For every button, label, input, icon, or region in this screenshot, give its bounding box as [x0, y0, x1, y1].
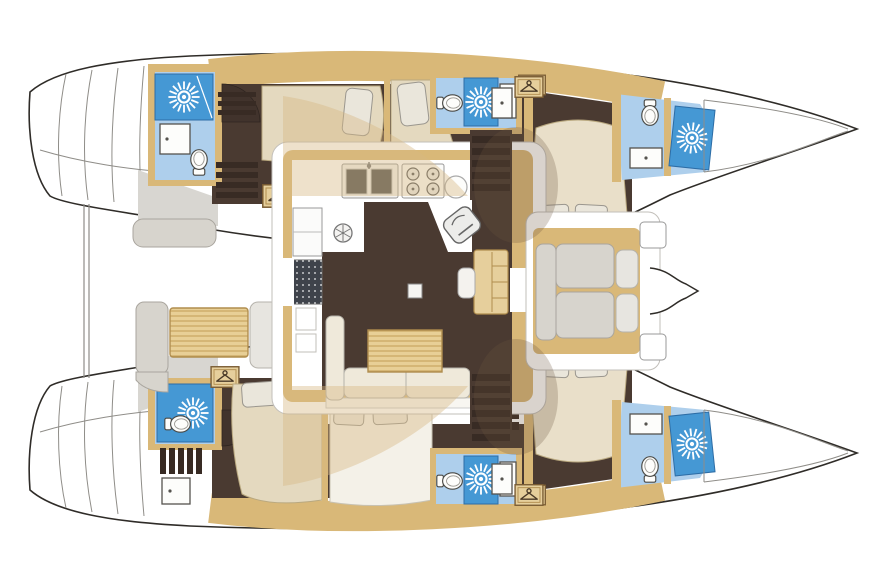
toilet-icon	[191, 150, 207, 176]
cockpit-table	[170, 308, 248, 357]
toilet-icon	[165, 416, 191, 432]
toilet-icon	[642, 457, 658, 483]
extractor-fan-icon	[334, 224, 352, 242]
mast-post	[408, 284, 422, 298]
port-aft-bathroom	[148, 64, 222, 186]
nav-seat	[458, 268, 475, 298]
locker-step	[640, 334, 666, 360]
u-sofa-seat	[556, 244, 614, 288]
u-sofa-cushion	[616, 250, 638, 288]
wardrobe-hanger-icon	[515, 77, 543, 98]
toilet-icon	[642, 100, 658, 126]
shower-stall	[669, 106, 715, 170]
deck-plan-stage	[0, 0, 873, 582]
bathroom-wall	[612, 90, 621, 182]
wardrobe-hanger-icon	[515, 485, 543, 506]
aft-davits	[84, 204, 89, 378]
bow-bracket	[650, 268, 698, 314]
shower-stall	[669, 412, 715, 476]
vanity-sink	[162, 478, 190, 504]
side-window	[296, 334, 316, 352]
pillow	[397, 81, 430, 126]
shower-icon	[168, 81, 199, 112]
vanity-sink	[630, 414, 662, 434]
locker-door	[492, 464, 512, 494]
u-sofa-back	[536, 244, 556, 340]
deck-shadow	[474, 127, 558, 243]
cockpit-bench	[133, 219, 216, 247]
toilet-icon	[437, 473, 463, 489]
locker-door	[492, 88, 512, 118]
catamaran-deck-plan	[0, 0, 873, 582]
deck-shadow	[474, 339, 558, 455]
side-window	[296, 308, 316, 330]
aft-door-opening	[281, 258, 294, 306]
u-sofa-cushion	[616, 294, 638, 332]
cockpit-side-bench	[136, 302, 168, 374]
vanity-sink	[630, 148, 662, 168]
vent-mat	[293, 260, 322, 304]
fridge	[293, 208, 322, 256]
forward-cockpit	[526, 212, 698, 370]
locker-step	[640, 222, 666, 248]
stairs-upper	[218, 92, 256, 115]
vanity-sink	[160, 124, 190, 154]
bathroom-wall	[612, 400, 621, 492]
dining-table	[368, 330, 442, 372]
toilet-icon	[437, 95, 463, 111]
u-sofa-seat	[556, 292, 614, 338]
